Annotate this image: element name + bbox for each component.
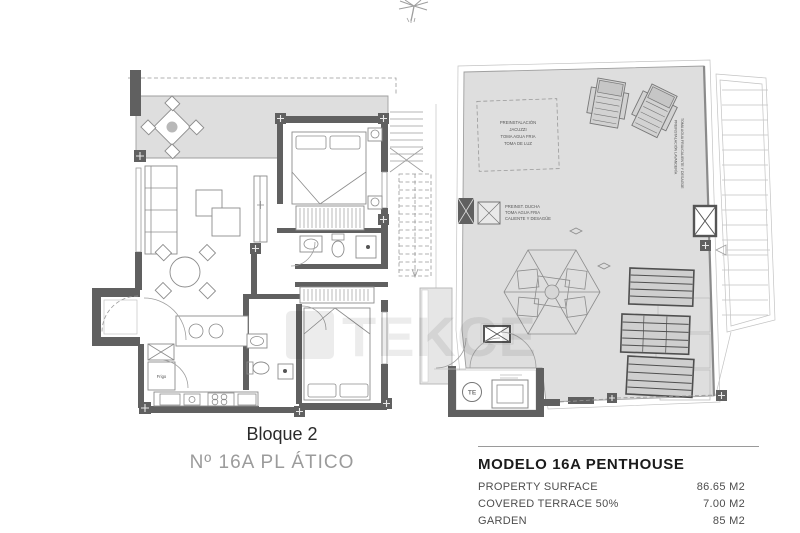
detail-row: COVERED TERRACE 50% 7.00 M2 [478,496,759,513]
detail-label: GARDEN [478,513,527,530]
floor-plan-page: Frigo [0,0,800,533]
exterior-staircase [716,74,775,394]
stairs-left-plan [390,104,436,300]
details-rows: PROPERTY SURFACE 86.65 M2 COVERED TERRAC… [478,479,759,530]
model-title: MODELO 16A PENTHOUSE [478,456,759,473]
detail-row: PROPERTY SURFACE 86.65 M2 [478,479,759,496]
jacuzzi-note-line: TOMA AGUA FRIA [500,134,535,139]
shower-note-line: TOMA AGUA FRIA [505,210,540,215]
dining-set [155,245,215,299]
skylight-box [481,324,513,344]
kitchen: Frigo [148,316,258,406]
detail-value: 85 M2 [713,513,745,530]
pergola-2 [621,314,690,354]
pergola-1 [629,268,694,306]
svg-text:TOMA AGUA FRIA/CALIENTE Y DESA: TOMA AGUA FRIA/CALIENTE Y DESAGÜE [680,118,684,189]
pergola-3 [626,356,694,397]
svg-text:PREINSTALACIÓN LAVANDERÍA: PREINSTALACIÓN LAVANDERÍA [674,120,679,175]
jacuzzi-note-line: TOMA DE LUZ [504,141,532,146]
terrace-railing-dashed [128,78,396,96]
shower-note-line: PREINST. DUCHA [505,204,540,209]
fridge-label: Frigo [157,374,167,379]
terrace-pillar [130,70,141,116]
detail-label: COVERED TERRACE 50% [478,496,619,513]
wardrobe-1 [296,206,364,230]
model-details: MODELO 16A PENTHOUSE PROPERTY SURFACE 86… [478,446,759,530]
detail-label: PROPERTY SURFACE [478,479,598,496]
jacuzzi-note-line: JACUZZI [509,127,526,132]
bathroom-1 [291,234,376,266]
tv-unit [254,176,267,242]
detail-row: GARDEN 85 M2 [478,513,759,530]
detail-value: 7.00 M2 [703,496,745,513]
bedroom-2 [300,287,374,400]
palm-tree-icon [399,0,428,23]
left-plan-subcaption: Nº 16A PL ÁTICO [132,452,412,474]
detail-value: 86.65 M2 [697,479,745,496]
details-divider [478,446,759,447]
wardrobe-2 [300,287,374,303]
left-floor-plan: Frigo [92,70,452,417]
shower-note-line: CALIENTE Y DESAGÜE [505,216,551,221]
sofa [145,166,177,254]
water-heater-label: TE [468,390,477,397]
left-plan-caption: Bloque 2 [182,424,382,445]
right-floor-plan: PREINSTALACIÓN JACUZZI TOMA AGUA FRIA TO… [434,60,775,417]
jacuzzi-note-line: PREINSTALACIÓN [500,120,536,125]
bathroom-2 [247,334,293,379]
planter-strip [420,288,452,384]
bedroom-1 [292,128,382,230]
coffee-table-2 [212,208,240,236]
